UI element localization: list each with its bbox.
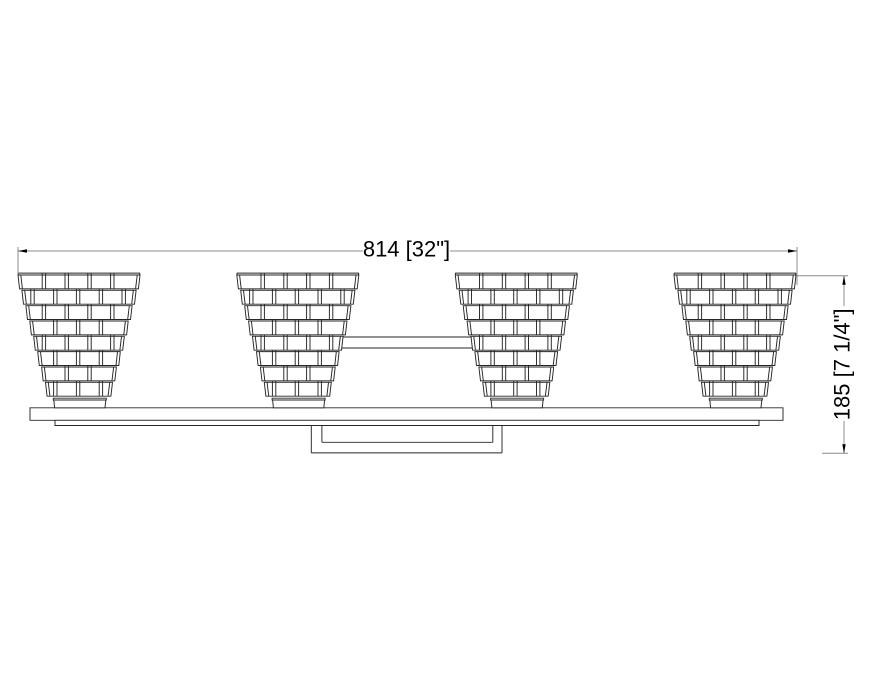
svg-text:185 [7 1/4"]: 185 [7 1/4"] xyxy=(830,308,855,420)
svg-text:814 [32"]: 814 [32"] xyxy=(363,237,450,262)
